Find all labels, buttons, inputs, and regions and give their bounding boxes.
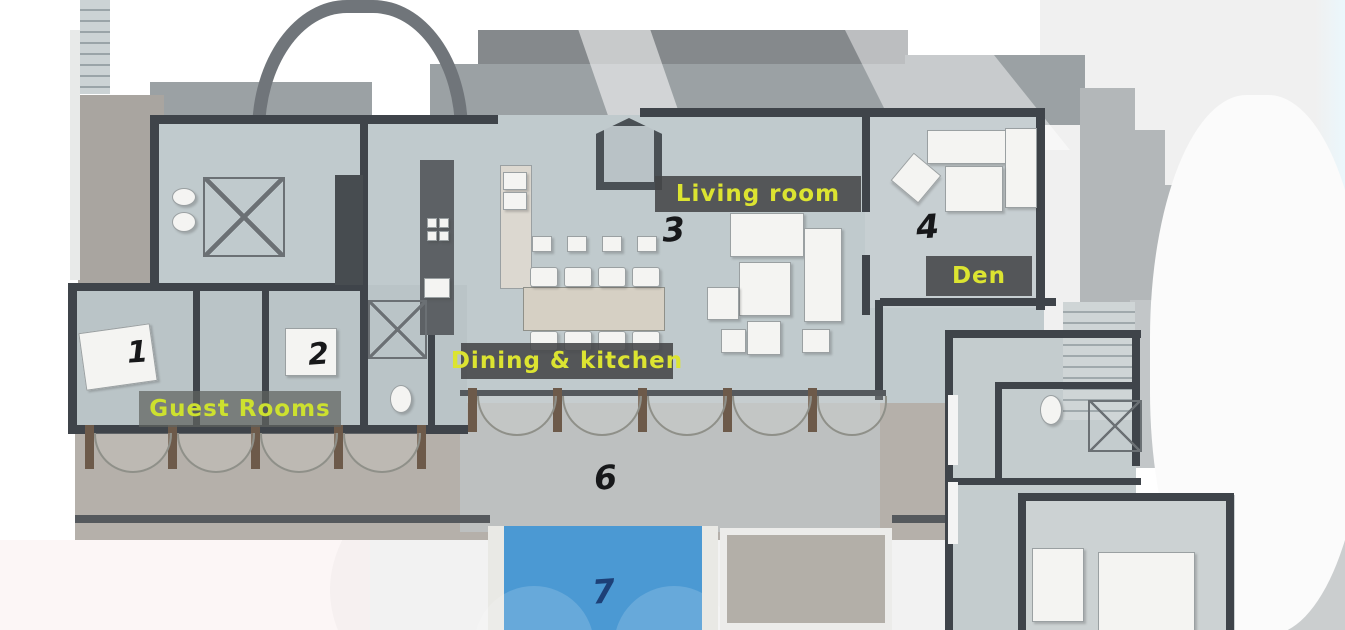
sink [172,212,196,232]
ottoman [802,329,830,353]
dining-table [523,287,665,331]
living-room-label-banner: Living room [655,176,861,212]
armchair [707,287,739,320]
toilet [390,385,412,413]
kitchen-sink [424,278,450,298]
wall-thick [335,175,363,285]
wall [945,330,1141,338]
closet [203,177,285,257]
wall [945,478,1141,485]
pool-coping-right [702,526,718,630]
den-sofa [1005,128,1037,208]
wall [1018,493,1026,630]
dining-chair [598,267,626,287]
room-number-1: 1 [126,334,149,370]
ottoman [747,321,781,355]
den-sofa [927,130,1007,164]
room-number-2: 2 [307,336,330,372]
toilet [1040,395,1062,425]
door-post [85,425,94,469]
dining-chair [530,267,558,287]
dining-kitchen-label: Dining & kitchen [451,348,683,374]
wall [995,382,1140,389]
room-number-4: 4 [915,206,941,247]
island-sink [503,192,527,210]
pool-steps-structure [720,528,892,630]
wall [865,108,1045,117]
room-number-7: 7 [591,571,617,612]
dining-chair [632,267,660,287]
stove-burner [427,231,437,241]
wall [880,298,1056,306]
wall [995,382,1002,478]
window-strip-right-suite [948,482,958,544]
coffee-table [739,262,791,316]
guest-rooms-label: Guest Rooms [149,396,331,422]
window-strip-west [70,30,80,280]
toilet [172,188,196,206]
exterior-stairs-left [80,0,110,94]
bar-stool [567,236,587,252]
dining-kitchen-label-banner: Dining & kitchen [461,343,673,379]
wall [862,255,870,315]
wall [150,115,159,291]
guest-rooms-label-banner: Guest Rooms [139,391,341,427]
wall [862,117,870,212]
stove-burner [427,218,437,228]
room-number-3: 3 [661,209,687,250]
wall [68,283,368,291]
shower [368,300,427,359]
wall [1226,493,1234,630]
sofa [730,213,804,257]
shower [1088,400,1142,452]
dining-chair [564,267,592,287]
door-post [468,388,477,432]
den-label: Den [952,263,1006,289]
stove-burner [439,218,449,228]
wall [875,300,883,400]
den-table [945,166,1003,212]
bar-stool [532,236,552,252]
living-room-label: Living room [676,181,840,207]
window-strip-right-suite [948,395,958,465]
wall [150,115,498,124]
bed [1098,552,1195,630]
ottoman [721,329,746,353]
wall [1036,108,1045,310]
wall [68,283,77,434]
shower-tray [1032,548,1084,622]
wall [360,283,368,429]
wall [1018,493,1234,501]
terrace-edge-wall [892,515,945,523]
terrace-edge-wall [75,515,490,523]
bar-stool [637,236,657,252]
bar-stool [602,236,622,252]
island-sink [503,172,527,190]
stove-burner [439,231,449,241]
watermark-tint-bottom-left [0,540,370,630]
den-label-banner: Den [926,256,1032,296]
sofa [804,228,842,322]
wall [640,108,872,117]
floor-plan-canvas: Living room Den Dining & kitchen Guest R… [0,0,1345,630]
roof-mass-top-center [478,30,908,66]
room-number-6: 6 [593,457,619,498]
